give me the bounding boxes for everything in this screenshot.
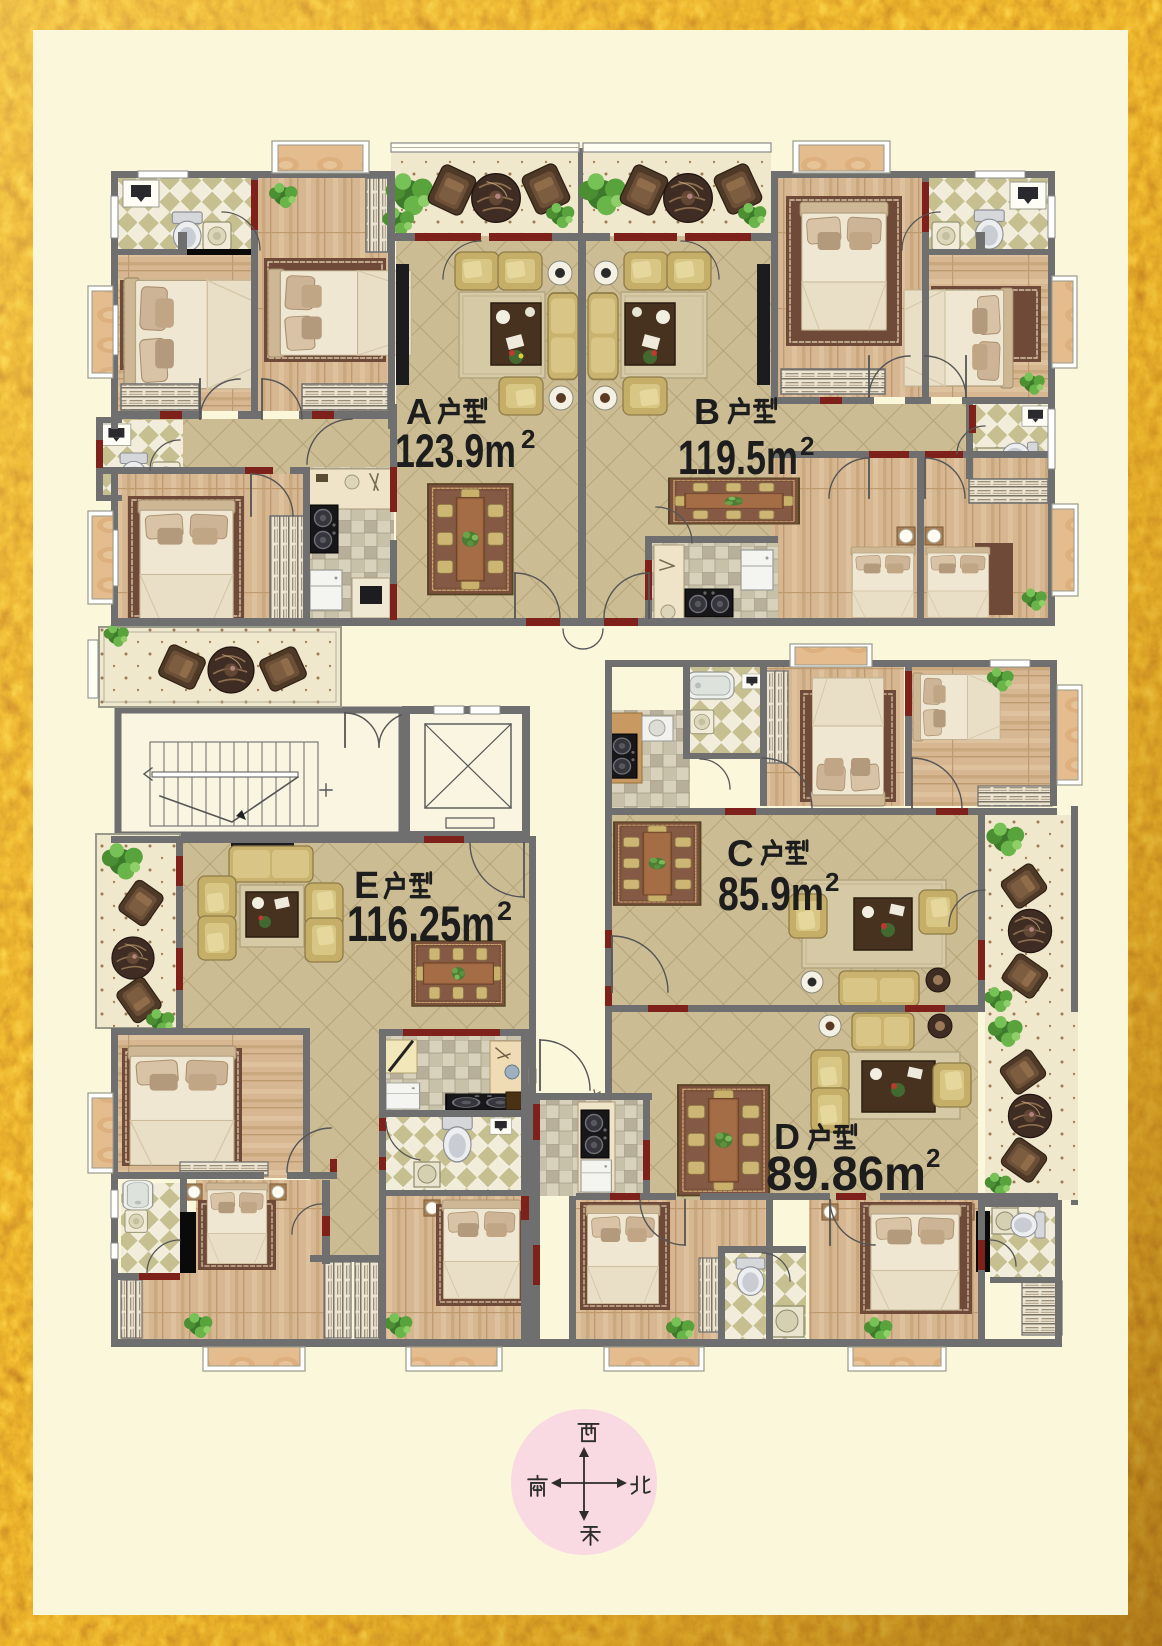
svg-text:B: B <box>694 391 720 432</box>
svg-text:89.86m: 89.86m <box>766 1148 926 1201</box>
svg-text:2: 2 <box>497 896 512 926</box>
svg-text:2: 2 <box>825 867 839 897</box>
svg-text:2: 2 <box>521 424 535 454</box>
svg-text:85.9m: 85.9m <box>718 867 824 920</box>
svg-text:116.25m: 116.25m <box>347 896 495 952</box>
svg-text:2: 2 <box>800 431 814 461</box>
svg-text:123.9m: 123.9m <box>395 424 516 477</box>
svg-text:119.5m: 119.5m <box>678 432 798 485</box>
svg-text:2: 2 <box>926 1143 940 1173</box>
